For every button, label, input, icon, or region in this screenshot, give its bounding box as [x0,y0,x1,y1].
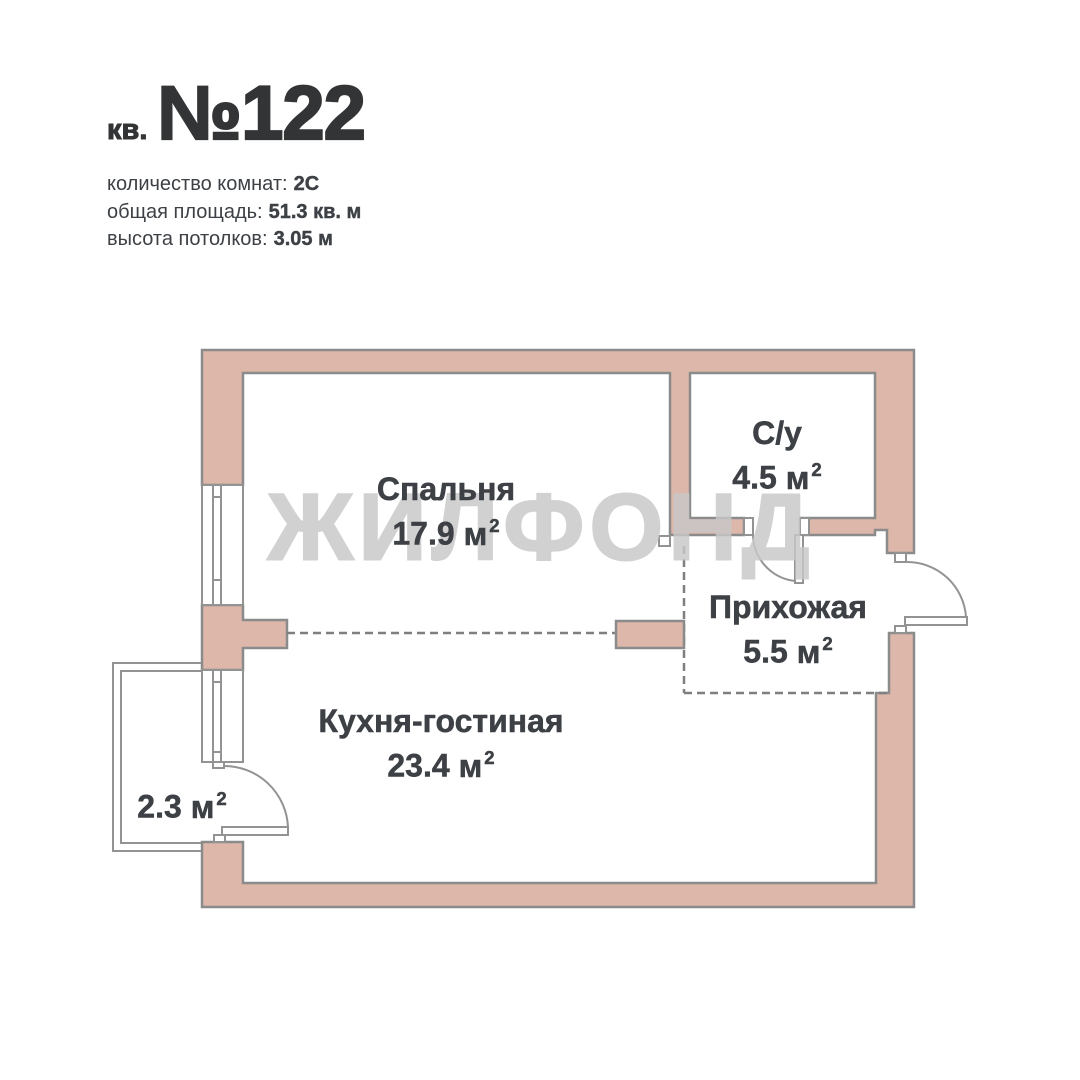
room-area: 4.5м2 [732,452,821,497]
detail-rooms: количество комнат:2С [107,171,365,199]
header: кв. №122 количество комнат:2С общая площ… [107,70,365,254]
room-area: 5.5м2 [709,626,867,671]
entrance-door-leaf [905,617,967,625]
room-name: Кухня-гостиная [318,703,563,740]
detail-area: общая площадь:51.3 кв. м [107,199,365,227]
room-label-hallway: Прихожая 5.5м2 [709,589,867,671]
apartment-label: кв. [107,114,147,147]
wall-end-cap [895,553,906,562]
room-label-kitchen-living: Кухня-гостиная 23.4м2 [318,703,563,785]
balcony-door-leaf [222,827,288,835]
floor-plan-page: кв. №122 количество комнат:2С общая площ… [0,0,1080,1080]
kitchen-window [202,670,243,762]
wall-end-cap [895,626,906,633]
room-area: 23.4м2 [318,740,563,785]
room-area: 17.9м2 [377,508,515,553]
entrance-door-arc [906,562,966,617]
room-label-bathroom: С/у 4.5м2 [732,415,821,497]
wall-end-cap [213,762,224,768]
detail-ceiling: высота потолков:3.05 м [107,226,365,254]
zone-wall-stub-mid [616,621,684,648]
room-name: Спальня [377,471,515,508]
apartment-number: №122 [157,70,365,157]
balcony-door-arc [223,766,288,827]
apartment-title: кв. №122 [107,70,365,157]
room-label-balcony: 2.3м2 [137,781,226,826]
room-area: 2.3м2 [137,781,226,826]
apartment-details: количество комнат:2С общая площадь:51.3 … [107,171,365,254]
left-wall-mid-block [202,605,287,670]
wall-end-cap [214,835,225,842]
room-name: С/у [732,415,821,452]
room-label-bedroom: Спальня 17.9м2 [377,471,515,553]
room-name: Прихожая [709,589,867,626]
bedroom-window [202,485,243,605]
